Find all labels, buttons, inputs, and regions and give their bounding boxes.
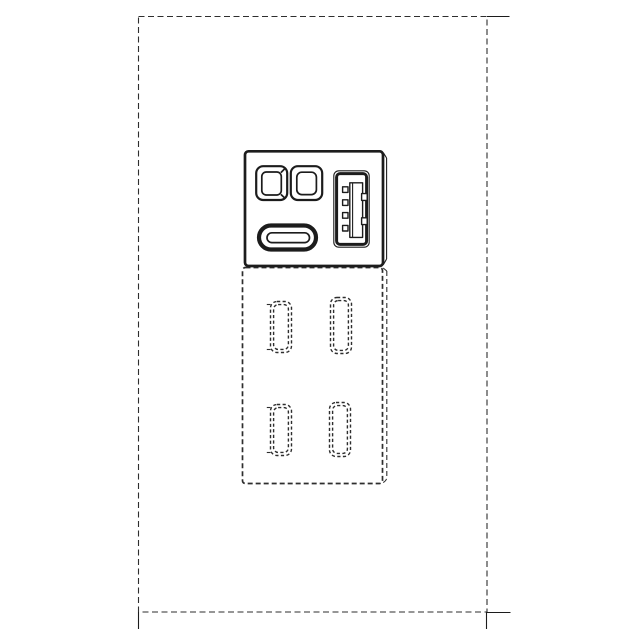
drawing-canvas xyxy=(0,0,640,640)
usb-a-contact xyxy=(343,187,348,193)
usb-a-shell-notch-top xyxy=(362,194,368,201)
usb-a-shell-notch-bottom xyxy=(362,218,368,225)
usb-a-contact xyxy=(343,225,348,231)
usb-a-contact xyxy=(343,200,348,206)
usb-c-port xyxy=(259,226,316,250)
usb-a-port xyxy=(334,171,369,247)
usb-a-contact xyxy=(343,213,348,219)
figure-background xyxy=(0,0,640,640)
patent-figure xyxy=(0,0,640,640)
